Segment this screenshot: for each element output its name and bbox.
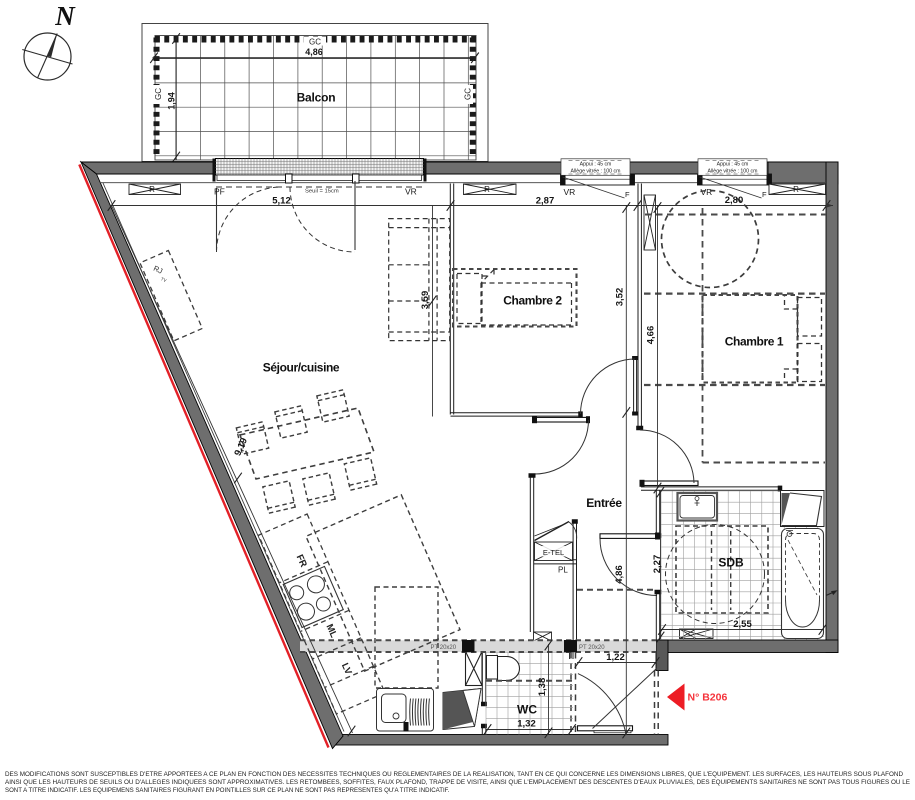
- svg-text:SONT A TITRE INDICATIF. LES EQ: SONT A TITRE INDICATIF. LES EQUIPEMENS S…: [5, 787, 450, 794]
- svg-text:4,86: 4,86: [305, 47, 323, 57]
- svg-text:AINSI QUE LES HAUTEURS DE SEUI: AINSI QUE LES HAUTEURS DE SEUILS OU D'AL…: [5, 779, 910, 786]
- svg-text:GC: GC: [464, 88, 473, 100]
- svg-text:VR: VR: [701, 187, 713, 197]
- svg-text:F: F: [625, 190, 630, 199]
- svg-text:E-TEL: E-TEL: [543, 548, 564, 557]
- svg-text:PT 20x20: PT 20x20: [431, 645, 457, 651]
- svg-text:Chambre 1: Chambre 1: [725, 335, 784, 349]
- svg-text:R: R: [793, 185, 799, 194]
- svg-text:DES MODIFICATIONS SONT SUSCEPT: DES MODIFICATIONS SONT SUSCEPTIBLES D'ET…: [5, 771, 904, 778]
- svg-text:PF: PF: [214, 187, 225, 197]
- svg-text:R: R: [484, 185, 490, 194]
- svg-text:1,32: 1,32: [517, 719, 536, 730]
- svg-text:Appui : 45 cm: Appui : 45 cm: [580, 162, 612, 168]
- svg-text:2,80: 2,80: [725, 195, 744, 206]
- svg-text:VR: VR: [564, 187, 576, 197]
- svg-text:1,22: 1,22: [606, 652, 625, 663]
- svg-text:R: R: [149, 185, 155, 194]
- svg-text:N° B206: N° B206: [688, 692, 728, 704]
- svg-text:GC: GC: [309, 38, 321, 47]
- svg-text:VR: VR: [405, 187, 417, 197]
- svg-text:2,55: 2,55: [733, 619, 752, 630]
- svg-text:4,66: 4,66: [646, 326, 657, 345]
- svg-text:N: N: [54, 1, 76, 31]
- svg-text:Appui : 45 cm: Appui : 45 cm: [717, 162, 749, 168]
- svg-text:Entrée: Entrée: [586, 496, 622, 510]
- svg-text:3,59: 3,59: [420, 291, 431, 310]
- svg-text:PT 20x20: PT 20x20: [579, 645, 605, 651]
- svg-text:SDB: SDB: [718, 556, 744, 570]
- svg-text:2,27: 2,27: [652, 555, 663, 574]
- svg-text:4,86: 4,86: [614, 565, 625, 584]
- svg-text:GC: GC: [154, 88, 163, 100]
- svg-text:PL: PL: [558, 566, 568, 575]
- svg-text:F: F: [762, 190, 767, 199]
- svg-text:1,38: 1,38: [537, 678, 548, 697]
- svg-text:3,52: 3,52: [615, 288, 626, 307]
- svg-text:Seuil = 15cm: Seuil = 15cm: [305, 189, 339, 195]
- svg-text:WC: WC: [517, 703, 537, 717]
- svg-text:Chambre 2: Chambre 2: [503, 294, 562, 308]
- svg-text:Balcon: Balcon: [297, 91, 336, 105]
- svg-text:Allège vitrée : 100 cm: Allège vitrée : 100 cm: [571, 169, 621, 175]
- svg-text:Allège vitrée : 100 cm: Allège vitrée : 100 cm: [708, 169, 758, 175]
- svg-text:2,87: 2,87: [536, 196, 555, 207]
- svg-text:Séjour/cuisine: Séjour/cuisine: [263, 361, 340, 375]
- svg-text:5,12: 5,12: [272, 196, 291, 207]
- svg-text:1,94: 1,94: [167, 92, 177, 110]
